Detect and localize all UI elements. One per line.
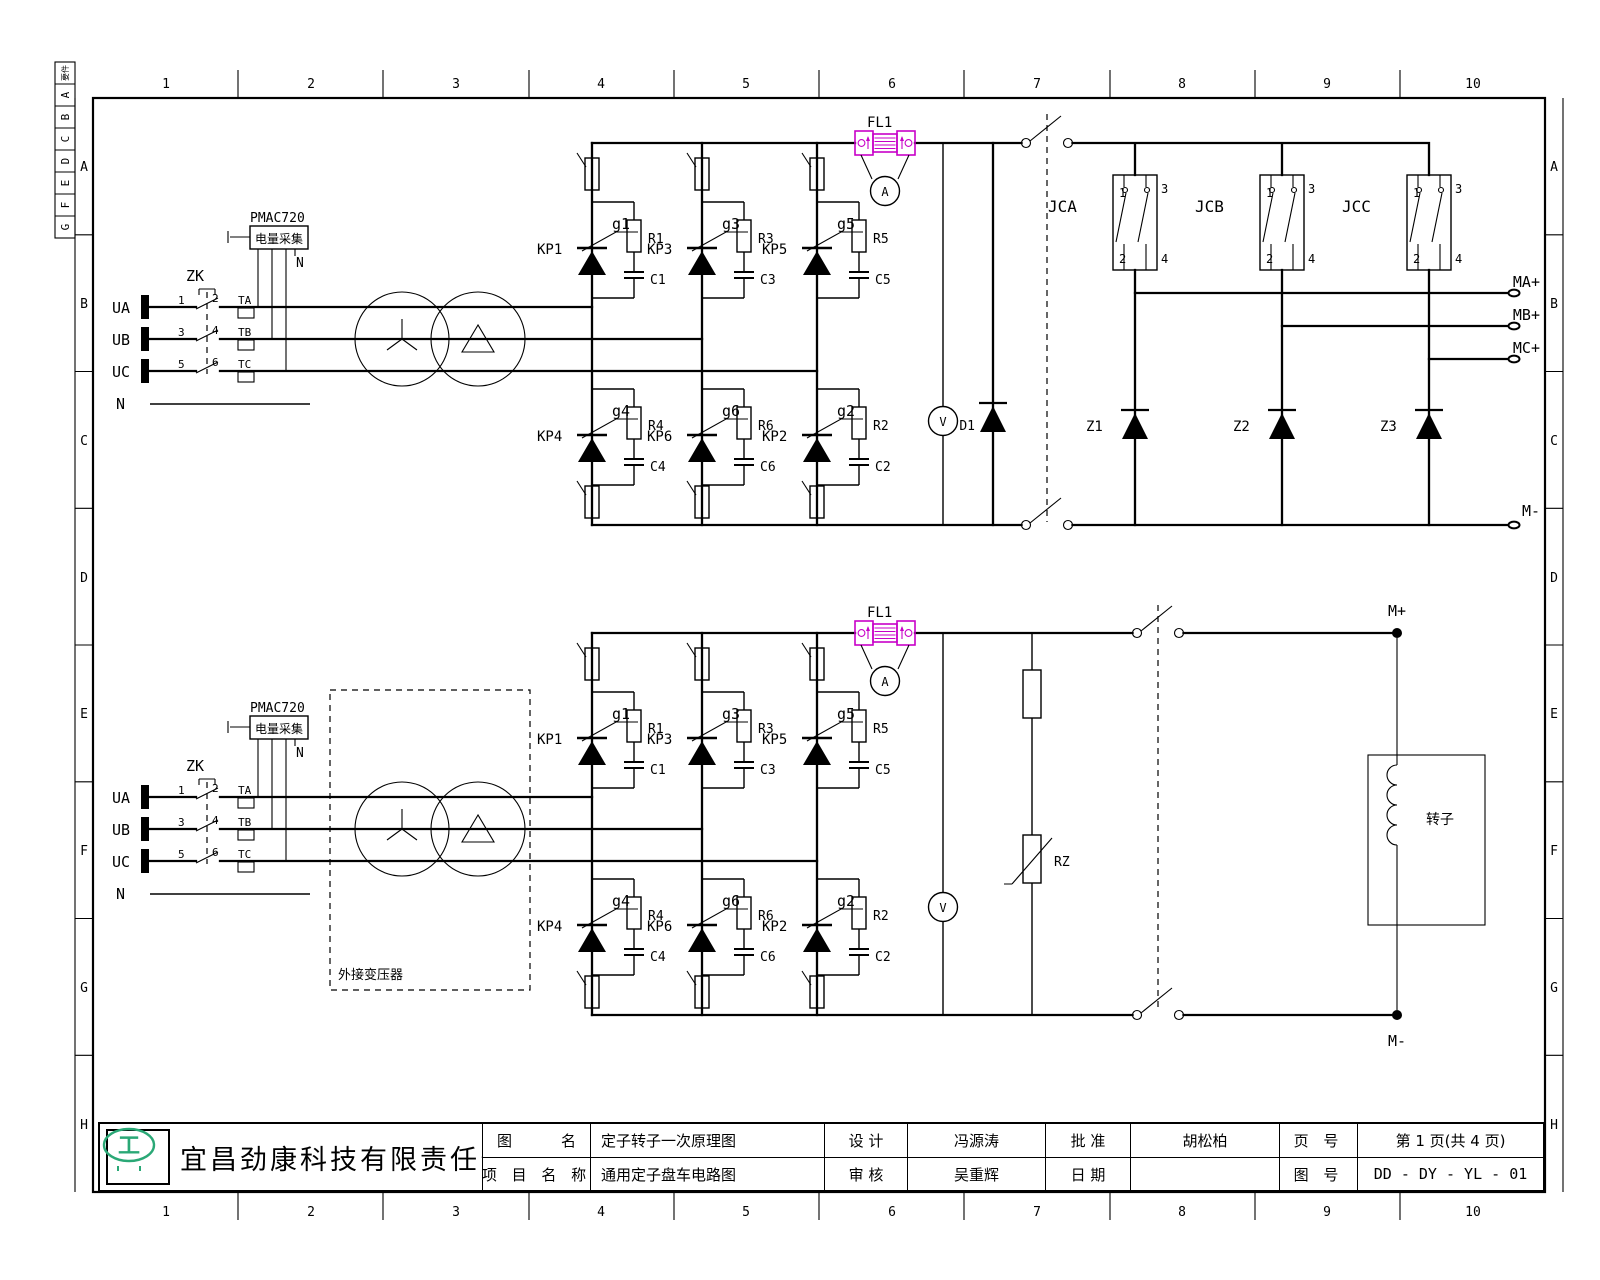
zone-row: F [80, 844, 88, 859]
capacitor-label: C6 [760, 950, 776, 965]
legend-cell: 要件 [60, 65, 70, 81]
capacitor-label: C5 [875, 763, 891, 778]
drawing-no: DD - DY - YL - 01 [1357, 1157, 1543, 1190]
legend-cell: A [59, 91, 72, 98]
fig-name: 定子转子一次原理图 [590, 1124, 824, 1157]
rotor-winding-label: 转子 [1426, 812, 1454, 828]
zone-row: A [1550, 160, 1558, 175]
ammeter-letter: A [881, 675, 889, 689]
output-label: MC+ [1513, 339, 1540, 357]
approve-label: 批 准 [1045, 1124, 1130, 1157]
diode-label: Z3 [1380, 419, 1397, 435]
diode-label: D1 [959, 419, 975, 434]
pole-number: 6 [212, 356, 219, 369]
zone-col: 3 [452, 1205, 460, 1220]
zone-col: 7 [1033, 1205, 1041, 1220]
ammeter-letter: A [881, 185, 889, 199]
contact-pin: 2 [1413, 252, 1420, 266]
breaker-label: ZK [186, 757, 204, 775]
thyristor-label: KP5 [762, 242, 787, 258]
zone-row: B [1550, 297, 1558, 312]
pole-number: 3 [178, 816, 185, 829]
capacitor-label: C4 [650, 460, 666, 475]
rotor-winding-box [1368, 755, 1485, 925]
capacitor-label: C6 [760, 460, 776, 475]
contactor-label: JCB [1195, 197, 1224, 216]
contactor-label: JCA [1048, 197, 1077, 216]
thyristor-label: KP1 [537, 732, 562, 748]
shunt-label: FL1 [867, 605, 892, 621]
contact-pin: 2 [1119, 252, 1126, 266]
diode-icon [1121, 410, 1149, 439]
shunt-fl1-icon [855, 621, 915, 645]
gate-label: g4 [612, 892, 630, 910]
capacitor-label: C5 [875, 273, 891, 288]
capacitor-label: C1 [650, 273, 666, 288]
zone-row: B [80, 297, 88, 312]
output-label: MB+ [1513, 306, 1540, 324]
gate-label: g5 [837, 705, 855, 723]
check-label: 审 核 [824, 1157, 907, 1190]
zone-row: A [80, 160, 88, 175]
phase-label: UC [112, 853, 130, 871]
breaker-zk: ZK 1 2 3 4 5 6 [150, 267, 219, 374]
contact-pin: 3 [1161, 182, 1168, 196]
pole-number: 5 [178, 358, 185, 371]
inductor-icon [1387, 765, 1397, 845]
phase-label: UA [112, 299, 130, 317]
thyristor-label: KP6 [647, 429, 672, 445]
pole-number: 6 [212, 846, 219, 859]
zone-col: 2 [307, 1205, 315, 1220]
diode-icon [1415, 410, 1443, 439]
pole-number: 3 [178, 326, 185, 339]
zone-col: 5 [742, 77, 750, 92]
pole-number: 4 [212, 814, 219, 827]
gate-label: g6 [722, 892, 740, 910]
zone-row: F [1550, 844, 1558, 859]
legend-cell: B [59, 113, 72, 120]
zone-row: C [1550, 434, 1558, 449]
resistor-label: R2 [873, 909, 889, 924]
contact-pin: 1 [1413, 186, 1420, 200]
varistor-branch: RZ [1004, 633, 1070, 1015]
zone-col: 3 [452, 77, 460, 92]
pole-number: 2 [212, 292, 219, 305]
breaker-zk: ZK 1 2 3 4 5 6 [150, 757, 219, 864]
company-name: 宜昌劲康科技有限责任公司 [180, 1138, 482, 1177]
external-transformer-box [330, 690, 530, 990]
ct-label: TC [238, 848, 251, 861]
resistor-label: R5 [873, 232, 889, 247]
neutral-label: N [116, 395, 125, 413]
gate-label: g2 [837, 402, 855, 420]
zone-row: E [80, 707, 88, 722]
page-number: 第 1 页(共 4 页) [1357, 1124, 1543, 1157]
thyristor-label: KP4 [537, 919, 562, 935]
pmac-name: 电量采集 [255, 721, 303, 736]
pmac-n-label: N [296, 256, 304, 271]
contact-pin: 4 [1308, 252, 1315, 266]
pmac-model: PMAC720 [250, 211, 305, 226]
legend-cell: D [59, 158, 72, 165]
shunt-fl1-icon [855, 131, 915, 155]
gate-label: g2 [837, 892, 855, 910]
thyristor-label: KP5 [762, 732, 787, 748]
zone-col: 4 [597, 1205, 605, 1220]
phase-label: UB [112, 821, 130, 839]
zone-col: 4 [597, 77, 605, 92]
corner-legend-strip: 要件 A B C D E F G [55, 62, 75, 238]
zone-row: G [1550, 981, 1558, 996]
diode-label: Z1 [1086, 419, 1103, 435]
schematic-canvas: 1 2 3 4 5 6 7 8 9 10 1 2 3 4 5 6 7 8 9 1… [0, 0, 1600, 1280]
output-label: M+ [1388, 602, 1406, 620]
contactor-jca: JCA 1 3 2 4 [1048, 175, 1168, 270]
pole-number: 4 [212, 324, 219, 337]
zone-ruler-top: 1 2 3 4 5 6 7 8 9 10 [162, 77, 1481, 92]
varistor-label: RZ [1054, 855, 1070, 870]
page-label: 页 号 [1279, 1124, 1357, 1157]
gate-label: g4 [612, 402, 630, 420]
phase-label: UA [112, 789, 130, 807]
pmac-name: 电量采集 [255, 231, 303, 246]
thyristor-label: KP2 [762, 919, 787, 935]
voltmeter-letter: V [939, 901, 946, 915]
gate-label: g1 [612, 705, 630, 723]
contactor-jcc: JCC 1 3 2 4 [1342, 175, 1462, 270]
legend-cell: C [59, 136, 72, 143]
zone-col: 1 [162, 1205, 170, 1220]
ct-label: TC [238, 358, 251, 371]
pmac-n-label: N [296, 746, 304, 761]
zone-col: 7 [1033, 77, 1041, 92]
zone-ruler-right: A B C D E F G H [1550, 160, 1558, 1133]
contact-pin: 1 [1266, 186, 1273, 200]
zone-col: 9 [1323, 1205, 1331, 1220]
zone-col: 8 [1178, 1205, 1186, 1220]
neutral-label: N [116, 885, 125, 903]
title-block: 工 宜昌劲康科技有限责任公司 图 名 定子转子一次原理图 设 计 冯源涛 批 准… [98, 1122, 1545, 1192]
capacitor-label: C1 [650, 763, 666, 778]
resistor-label: R5 [873, 722, 889, 737]
logo-glyph: 工 [118, 1134, 140, 1159]
thyristor-label: KP6 [647, 919, 672, 935]
capacitor-label: C4 [650, 950, 666, 965]
pole-number: 2 [212, 782, 219, 795]
zone-row: E [1550, 707, 1558, 722]
zone-row: D [80, 571, 88, 586]
phase-label: UC [112, 363, 130, 381]
gate-label: g1 [612, 215, 630, 233]
project-name: 通用定子盘车电路图 [590, 1157, 824, 1190]
zone-col: 10 [1465, 1205, 1481, 1220]
thyristor-label: KP2 [762, 429, 787, 445]
voltmeter-letter: V [939, 415, 946, 429]
zone-ruler-left: A B C D E F G H [80, 160, 88, 1133]
pmac-meter-box: PMAC720 电量采集 N [228, 701, 308, 861]
pole-number: 1 [178, 784, 185, 797]
zone-col: 6 [888, 77, 896, 92]
contact-pin: 4 [1455, 252, 1462, 266]
thyristor-label: KP4 [537, 429, 562, 445]
zone-col: 2 [307, 77, 315, 92]
zone-row: C [80, 434, 88, 449]
contact-pin: 2 [1266, 252, 1273, 266]
output-terminal [1509, 522, 1520, 529]
output-label: MA+ [1513, 273, 1540, 291]
stator-circuit: UA UB UC N ZK 1 2 3 4 5 6 TA TB TC PMAC7… [112, 114, 1540, 530]
zone-row: D [1550, 571, 1558, 586]
date-value [1130, 1157, 1279, 1190]
fig-label-right: 名 [561, 1130, 576, 1151]
pole-number: 1 [178, 294, 185, 307]
zone-col: 6 [888, 1205, 896, 1220]
ct-label: TA [238, 294, 252, 307]
approver-name: 胡松柏 [1130, 1124, 1279, 1157]
contact-pin: 4 [1161, 252, 1168, 266]
zone-row: H [1550, 1118, 1558, 1133]
thyristor-label: KP3 [647, 242, 672, 258]
output-label: M- [1522, 502, 1540, 520]
contactor-jcb: JCB 1 3 2 4 [1195, 175, 1315, 270]
company-logo: 工 [106, 1129, 170, 1185]
project-label: 项 目 名 称 [482, 1157, 590, 1190]
zone-col: 10 [1465, 77, 1481, 92]
zone-row: G [80, 981, 88, 996]
zone-row: H [80, 1118, 88, 1133]
ct-label: TB [238, 816, 252, 829]
phase-label: UB [112, 331, 130, 349]
gate-label: g3 [722, 215, 740, 233]
zone-ruler-bottom: 1 2 3 4 5 6 7 8 9 10 [162, 1205, 1481, 1220]
pole-number: 5 [178, 848, 185, 861]
contact-pin: 3 [1308, 182, 1315, 196]
fig-label-left: 图 [497, 1130, 512, 1151]
contactor-label: JCC [1342, 197, 1371, 216]
contact-pin: 3 [1455, 182, 1462, 196]
pmac-meter-box: PMAC720 电量采集 N [228, 211, 308, 371]
date-label: 日 期 [1045, 1157, 1130, 1190]
zone-col: 8 [1178, 77, 1186, 92]
zone-col: 9 [1323, 77, 1331, 92]
pmac-model: PMAC720 [250, 701, 305, 716]
gate-label: g6 [722, 402, 740, 420]
ct-label: TB [238, 326, 252, 339]
capacitor-label: C3 [760, 273, 776, 288]
design-label: 设 计 [824, 1124, 907, 1157]
disconnect-switch-icon [1022, 116, 1073, 148]
drawing-no-label: 图 号 [1279, 1157, 1357, 1190]
shunt-label: FL1 [867, 115, 892, 131]
diode-icon [979, 403, 1007, 432]
thyristor-label: KP1 [537, 242, 562, 258]
rotor-circuit: UA UB UC N ZK 1 2 3 4 5 6 TA TB TC PMAC7… [112, 602, 1485, 1050]
resistor-label: R2 [873, 419, 889, 434]
contact-pin: 1 [1119, 186, 1126, 200]
capacitor-label: C2 [875, 460, 891, 475]
legend-cell: E [59, 180, 72, 187]
external-transformer-label: 外接变压器 [338, 967, 403, 983]
breaker-label: ZK [186, 267, 204, 285]
gate-label: g5 [837, 215, 855, 233]
designer-name: 冯源涛 [907, 1124, 1045, 1157]
gate-label: g3 [722, 705, 740, 723]
output-label: M- [1388, 1032, 1406, 1050]
zone-col: 5 [742, 1205, 750, 1220]
drawing-sheet: 1 2 3 4 5 6 7 8 9 10 1 2 3 4 5 6 7 8 9 1… [0, 0, 1600, 1280]
zone-col: 1 [162, 77, 170, 92]
legend-cell: F [59, 202, 72, 209]
checker-name: 吴重辉 [907, 1157, 1045, 1190]
capacitor-label: C3 [760, 763, 776, 778]
thyristor-label: KP3 [647, 732, 672, 748]
company-cell: 工 宜昌劲康科技有限责任公司 [100, 1124, 482, 1190]
fig-label-cell: 图 名 [482, 1124, 590, 1157]
legend-cell: G [59, 224, 72, 231]
ct-label: TA [238, 784, 252, 797]
capacitor-label: C2 [875, 950, 891, 965]
diode-icon [1268, 410, 1296, 439]
diode-label: Z2 [1233, 419, 1250, 435]
